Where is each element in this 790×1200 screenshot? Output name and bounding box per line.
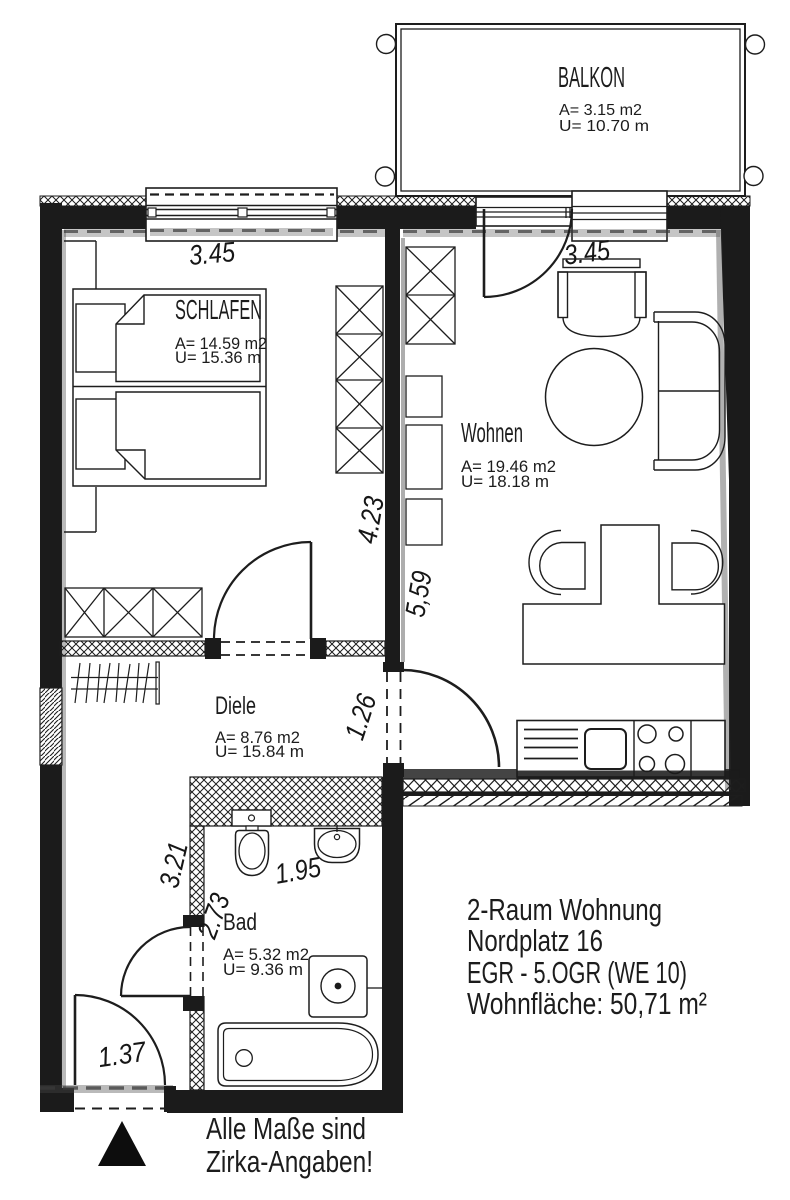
svg-text:A= 3.15 m2: A= 3.15 m2 — [559, 102, 642, 119]
svg-text:3.45: 3.45 — [562, 234, 612, 270]
svg-text:Alle Maße sind: Alle Maße sind — [206, 1111, 366, 1146]
svg-text:Wohnfläche: 50,71 m²: Wohnfläche: 50,71 m² — [467, 986, 707, 1021]
svg-text:BALKON: BALKON — [558, 62, 625, 94]
svg-text:Nordplatz 16: Nordplatz 16 — [467, 923, 603, 958]
svg-text:Diele: Diele — [215, 692, 256, 720]
svg-text:Zirka-Angaben!: Zirka-Angaben! — [206, 1144, 373, 1179]
svg-text:SCHLAFEN: SCHLAFEN — [175, 294, 262, 325]
svg-text:U= 15.84 m: U= 15.84 m — [215, 742, 304, 761]
svg-text:3.45: 3.45 — [188, 236, 237, 271]
svg-text:U= 18.18 m: U= 18.18 m — [461, 472, 549, 491]
svg-text:U= 10.70 m: U= 10.70 m — [559, 118, 649, 135]
svg-text:U= 15.36 m: U= 15.36 m — [175, 348, 261, 367]
svg-text:U= 9.36 m: U= 9.36 m — [223, 960, 303, 979]
svg-text:Wohnen: Wohnen — [461, 417, 523, 448]
svg-text:2-Raum Wohnung: 2-Raum Wohnung — [467, 892, 662, 927]
svg-text:EGR - 5.OGR (WE 10): EGR - 5.OGR (WE 10) — [467, 955, 687, 990]
